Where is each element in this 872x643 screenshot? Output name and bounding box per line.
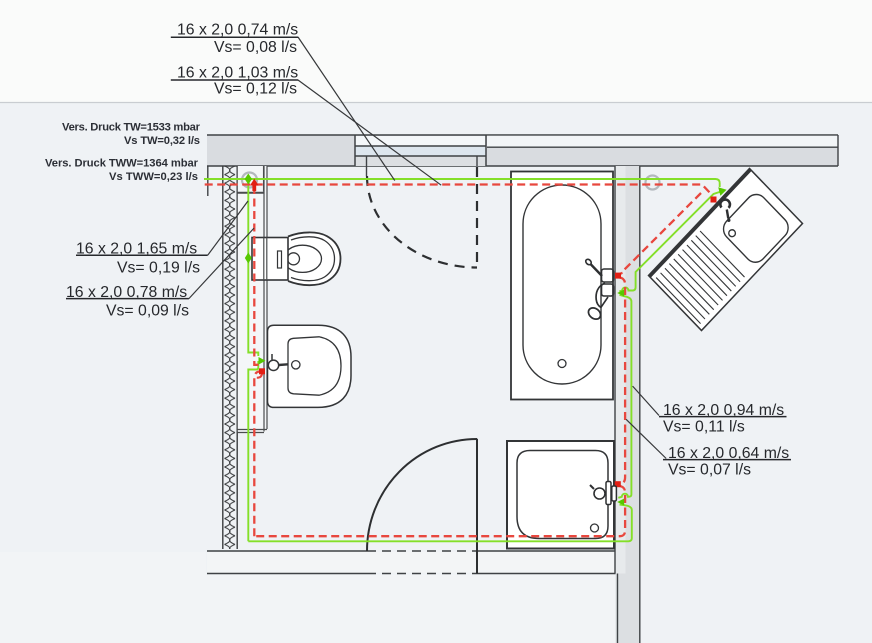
svg-text:Vs= 0,19 l/s: Vs= 0,19 l/s — [117, 260, 200, 277]
svg-text:Vs TW=0,32 l/s: Vs TW=0,32 l/s — [124, 135, 200, 147]
svg-text:16 x 2,0 0,74 m/s: 16 x 2,0 0,74 m/s — [177, 21, 298, 38]
svg-text:Vs= 0,07 l/s: Vs= 0,07 l/s — [668, 462, 751, 479]
svg-text:Vs= 0,08 l/s: Vs= 0,08 l/s — [214, 39, 297, 56]
svg-text:Vers. Druck TW=1533 mbar: Vers. Druck TW=1533 mbar — [62, 122, 201, 134]
svg-text:16 x 2,0 1,03 m/s: 16 x 2,0 1,03 m/s — [177, 65, 298, 82]
svg-text:Vers. Druck TWW=1364 mbar: Vers. Druck TWW=1364 mbar — [45, 158, 199, 170]
svg-text:Vs TWW=0,23 l/s: Vs TWW=0,23 l/s — [109, 171, 198, 183]
svg-text:Vs= 0,12 l/s: Vs= 0,12 l/s — [214, 81, 297, 98]
svg-text:Vs= 0,09 l/s: Vs= 0,09 l/s — [106, 303, 189, 320]
svg-text:Vs= 0,11 l/s: Vs= 0,11 l/s — [663, 419, 745, 436]
